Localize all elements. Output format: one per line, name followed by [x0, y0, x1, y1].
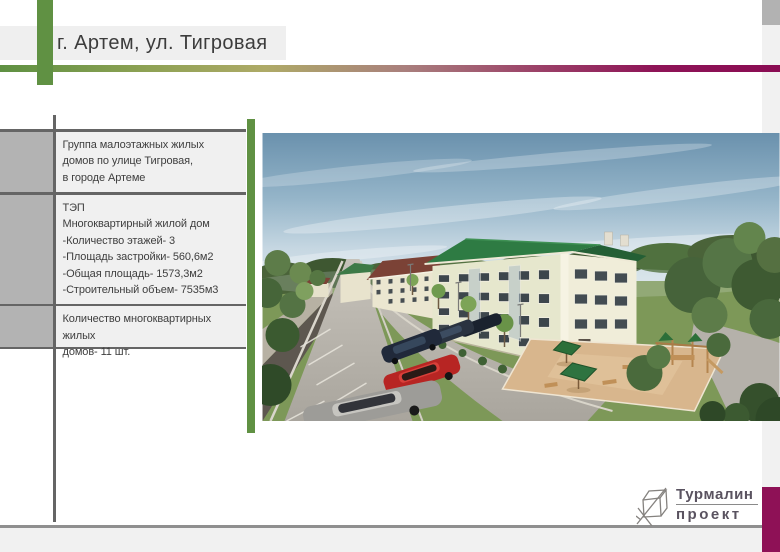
- green-accent-bar-top: [37, 0, 53, 85]
- tep-specs: ТЭП Многоквартирный жилой дом -Количеств…: [56, 195, 247, 299]
- table-row-marker: [0, 195, 53, 304]
- logo-text-block: Турмалин проект: [676, 486, 758, 523]
- top-right-gray-block: [762, 0, 780, 25]
- table-row: ТЭП Многоквартирный жилой дом -Количеств…: [56, 195, 247, 304]
- accent-gradient-line: [0, 65, 780, 72]
- footer-strip: [0, 528, 762, 552]
- architecture-render-image: [262, 133, 780, 421]
- green-accent-bar-side: [247, 119, 255, 433]
- table-row-marker: [0, 132, 53, 193]
- sketch-cube-icon: [636, 486, 672, 526]
- logo-title: Турмалин: [676, 486, 758, 505]
- table-row: Группа малоэтажных жилых домов по улице …: [56, 132, 247, 193]
- table-row-marker: [0, 306, 53, 347]
- bottom-right-magenta-block: [762, 487, 780, 552]
- company-logo: Турмалин проект: [636, 486, 762, 526]
- page-title: г. Артем, ул. Тигровая: [57, 26, 267, 60]
- buildings-count: Количество многоквартирных жилых домов- …: [56, 306, 247, 361]
- table-row: Количество многоквартирных жилых домов- …: [56, 306, 247, 347]
- logo-subtitle: проект: [676, 506, 758, 523]
- project-description: Группа малоэтажных жилых домов по улице …: [56, 132, 247, 187]
- slide: г. Артем, ул. Тигровая Группа малоэтажны…: [0, 0, 780, 552]
